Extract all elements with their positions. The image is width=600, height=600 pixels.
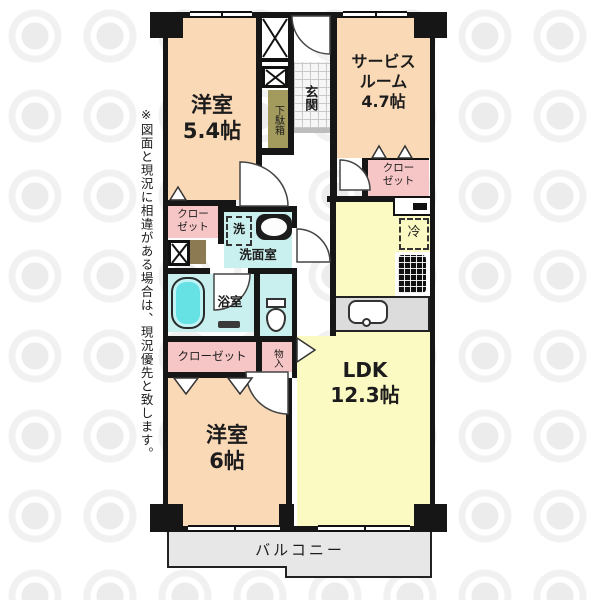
- room-name: 洋室: [168, 422, 286, 448]
- closet-fold-marker: [170, 187, 186, 200]
- disclaimer-text: ※図面と現況に相違がある場合は、現況優先と致します。: [138, 106, 154, 462]
- ldk-label: LDK 12.3帖: [310, 358, 420, 408]
- room-size: 5.4帖: [168, 118, 256, 144]
- closet-fold-marker: [398, 146, 412, 158]
- room-name: サービス: [337, 52, 430, 72]
- storage-label: 物入: [271, 345, 283, 371]
- balcony-label: バルコニー: [230, 541, 370, 560]
- room-size: 4.7帖: [337, 92, 430, 112]
- room-name: ルーム: [337, 72, 430, 92]
- room-size: 12.3帖: [310, 383, 420, 408]
- entrance-door-swing: [292, 16, 330, 54]
- washer-label: 洗: [230, 222, 248, 237]
- entrance-label: 玄関: [301, 70, 317, 126]
- closet-label-line: クロー: [168, 208, 218, 221]
- room-name: LDK: [310, 358, 420, 383]
- washroom-door-swing: [297, 229, 330, 262]
- closet-bottom-label: クローゼット: [168, 349, 256, 363]
- closet-top-left-label: クロー ゼット: [168, 208, 218, 234]
- room-name: 洋室: [168, 92, 256, 118]
- floor-plan: ※図面と現況に相違がある場合は、現況優先と致します。 洋室 5.4帖 サービス …: [0, 0, 600, 600]
- room-size: 6帖: [168, 448, 286, 474]
- window: [343, 11, 407, 18]
- closet-fold-marker: [174, 378, 198, 394]
- closet-label-line: ゼット: [368, 175, 429, 188]
- service-room-closet-label: クロー ゼット: [368, 162, 429, 188]
- western-room-2-label: 洋室 6帖: [168, 422, 286, 475]
- plan-line-art: [0, 0, 600, 600]
- closet-label-line: ゼット: [168, 221, 218, 234]
- fridge-label: 冷: [402, 225, 426, 241]
- closet-label-line: クロー: [368, 162, 429, 175]
- western-room-1-label: 洋室 5.4帖: [168, 92, 256, 145]
- washroom-label: 洗面室: [224, 247, 292, 263]
- western-room-1-door-swing: [240, 162, 288, 206]
- closet-fold-marker: [372, 146, 386, 158]
- service-room-door-swing: [340, 160, 370, 190]
- window: [188, 525, 280, 532]
- shoe-cabinet-label: 下駄箱: [271, 93, 284, 147]
- window: [190, 11, 252, 18]
- service-room-label: サービス ルーム 4.7帖: [337, 52, 430, 112]
- bathroom-label: 浴室: [206, 294, 254, 310]
- window: [318, 525, 410, 532]
